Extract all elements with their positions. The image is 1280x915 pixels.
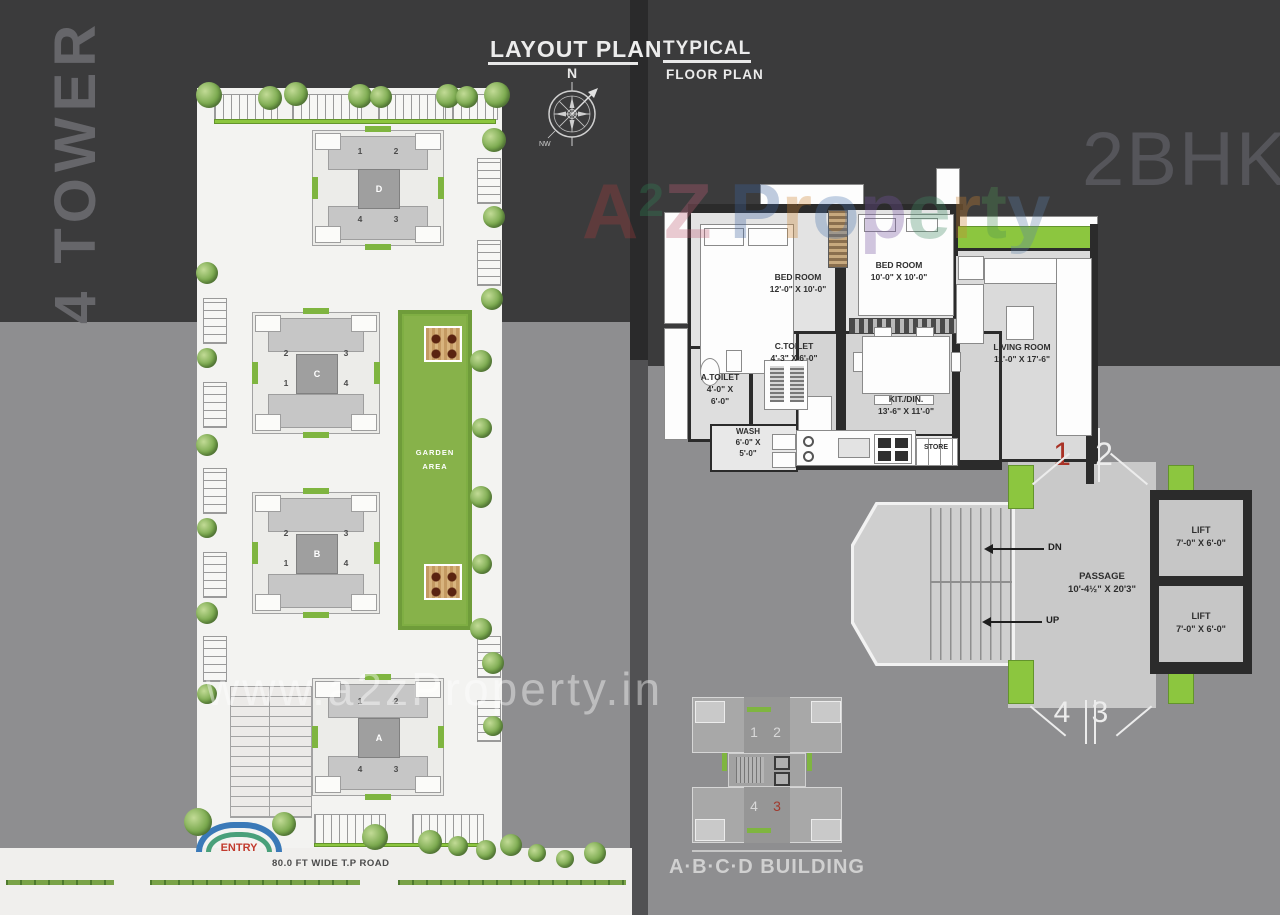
room-size: 12'-0" X 10'-0" bbox=[770, 284, 827, 296]
tree-icon bbox=[258, 86, 282, 110]
tree-icon bbox=[500, 834, 522, 856]
balcony-strip bbox=[303, 308, 329, 314]
compass-nw-label: NW bbox=[539, 141, 551, 148]
brand-watermark: A2ZProperty bbox=[582, 172, 1050, 261]
building-room bbox=[255, 495, 281, 512]
watermark-letter: e bbox=[907, 172, 950, 250]
kitchen-sink bbox=[838, 438, 870, 458]
chhajja-strip bbox=[664, 328, 688, 440]
room-size: 6'-0" bbox=[701, 396, 740, 408]
key-unit-1: 1 bbox=[750, 725, 758, 739]
room-name: KIT./DIN. bbox=[878, 394, 934, 406]
watermark-letter: p bbox=[860, 172, 908, 250]
balcony-strip bbox=[252, 362, 258, 384]
parking-stalls bbox=[477, 158, 501, 204]
entry-label: ENTRY bbox=[221, 842, 258, 854]
chair bbox=[874, 327, 892, 337]
garden-label-line2: AREA bbox=[416, 460, 455, 474]
building-letter: C bbox=[296, 354, 338, 394]
building-b: B 2 3 1 4 bbox=[252, 488, 380, 618]
layout-plan-page: 4 TOWER LAYOUT PLAN TYPICAL FLOOR PLAN N… bbox=[0, 0, 1280, 915]
wardrobe bbox=[849, 318, 959, 334]
deck-seats bbox=[426, 566, 460, 598]
unit-number: 3 bbox=[394, 764, 399, 774]
tree-icon bbox=[470, 486, 492, 508]
up-arrow-line bbox=[990, 621, 1042, 623]
tree-icon bbox=[556, 850, 574, 868]
living-room-label: LIVING ROOM 11'-0" X 17'-6" bbox=[993, 342, 1050, 366]
balcony-strip bbox=[312, 726, 318, 748]
chair bbox=[951, 352, 961, 372]
stair-landing-line bbox=[930, 581, 1012, 583]
sofa bbox=[1056, 258, 1092, 436]
compass-north-label: N bbox=[567, 65, 577, 81]
wash-sink bbox=[772, 452, 796, 468]
bedroom-2-label: BED ROOM 10'-0" X 10'-0" bbox=[871, 260, 928, 284]
key-plan-room bbox=[695, 819, 725, 841]
dn-arrow-icon bbox=[984, 544, 993, 554]
building-room bbox=[255, 414, 281, 431]
building-c: C 2 3 1 4 bbox=[252, 308, 380, 438]
parking-stalls bbox=[203, 552, 227, 598]
dn-arrow-line bbox=[992, 548, 1044, 550]
stairs-up-label: UP bbox=[1046, 615, 1059, 626]
dining-table bbox=[862, 336, 950, 394]
room-name: BED ROOM bbox=[770, 272, 827, 284]
room-name: PASSAGE bbox=[1068, 570, 1136, 583]
room-name: A.TOILET bbox=[701, 372, 740, 384]
tree-icon bbox=[482, 128, 506, 152]
chair bbox=[916, 327, 934, 337]
building-wing bbox=[328, 136, 428, 170]
building-room bbox=[351, 594, 377, 611]
tree-icon bbox=[272, 812, 296, 836]
room-size: 13'-6" X 11'-0" bbox=[878, 406, 934, 418]
building-room bbox=[315, 133, 341, 150]
unit-number: 3 bbox=[394, 214, 399, 224]
balcony-strip bbox=[312, 177, 318, 199]
tree-icon bbox=[483, 206, 505, 228]
watermark-letter: A bbox=[582, 172, 638, 250]
unit-number: 4 bbox=[344, 378, 349, 388]
room-name: C.TOILET bbox=[770, 341, 817, 353]
tree-icon bbox=[197, 348, 217, 368]
bedroom-1-label: BED ROOM 12'-0" X 10'-0" bbox=[770, 272, 827, 296]
balcony-strip bbox=[374, 542, 380, 564]
tree-icon bbox=[196, 262, 218, 284]
road-hedge bbox=[6, 880, 114, 885]
tree-icon bbox=[470, 618, 492, 640]
tree-icon bbox=[370, 86, 392, 108]
key-plan-lift bbox=[774, 756, 790, 770]
layout-plan-title: LAYOUT PLAN bbox=[490, 36, 662, 63]
passage-balcony bbox=[1008, 465, 1034, 509]
unit-number: 2 bbox=[284, 348, 289, 358]
key-unit-2: 2 bbox=[773, 725, 781, 739]
lift-1-label: LIFT 7'-0" X 6'-0" bbox=[1176, 524, 1226, 549]
building-room bbox=[415, 776, 441, 793]
marker-tick bbox=[1085, 700, 1087, 744]
tree-icon bbox=[528, 844, 546, 862]
unit-number: 3 bbox=[344, 348, 349, 358]
building-letter: B bbox=[296, 534, 338, 574]
attached-toilet-label: A.TOILET 4'-0" X 6'-0" bbox=[701, 372, 740, 408]
kitchen-dining-label: KIT./DIN. 13'-6" X 11'-0" bbox=[878, 394, 934, 418]
key-plan-room bbox=[695, 701, 725, 723]
marker-tick bbox=[1116, 705, 1153, 736]
room-name: LIFT bbox=[1176, 610, 1226, 623]
sofa bbox=[984, 258, 1062, 284]
tree-icon bbox=[418, 830, 442, 854]
wash-label: WASH 6'-0" X 5'-0" bbox=[736, 426, 761, 460]
parking-stalls bbox=[203, 298, 227, 344]
unit-number: 4 bbox=[344, 558, 349, 568]
room-size: 7'-0" X 6'-0" bbox=[1176, 623, 1226, 636]
unit-number: 2 bbox=[394, 146, 399, 156]
road-hedge bbox=[150, 880, 360, 885]
building-wing bbox=[328, 756, 428, 790]
building-letter: D bbox=[358, 169, 400, 209]
building-wing bbox=[268, 574, 364, 608]
key-plan: 1 2 4 3 bbox=[692, 695, 842, 845]
gas-ring bbox=[803, 436, 814, 447]
stair-treads bbox=[930, 508, 1012, 660]
room-name: STORE bbox=[924, 443, 948, 453]
balcony-strip bbox=[252, 542, 258, 564]
balcony-strip bbox=[365, 244, 391, 250]
tree-icon bbox=[196, 434, 218, 456]
key-plan-stairs bbox=[736, 757, 764, 783]
store-label: STORE bbox=[924, 443, 948, 453]
building-letter: A bbox=[358, 718, 400, 758]
lift-2-label: LIFT 7'-0" X 6'-0" bbox=[1176, 610, 1226, 635]
building-room bbox=[415, 133, 441, 150]
room-size: 11'-0" X 17'-6" bbox=[993, 354, 1050, 366]
building-room bbox=[415, 226, 441, 243]
building-room bbox=[255, 594, 281, 611]
passage-balcony bbox=[1008, 660, 1034, 704]
key-plan-room bbox=[811, 701, 841, 723]
key-plan-room bbox=[811, 819, 841, 841]
marker-tick bbox=[1098, 428, 1100, 482]
balcony-strip bbox=[374, 362, 380, 384]
common-toilet-label: C.TOILET 4'-3" X 6'-0" bbox=[770, 341, 817, 365]
room-name: BED ROOM bbox=[871, 260, 928, 272]
watermark-letter: o bbox=[812, 172, 860, 250]
marker-tick bbox=[1094, 700, 1096, 744]
gas-ring bbox=[803, 451, 814, 462]
tower-count-label: 4 TOWER bbox=[42, 34, 109, 324]
balcony-strip bbox=[303, 612, 329, 618]
building-room bbox=[351, 495, 377, 512]
balcony-strip bbox=[438, 177, 444, 199]
watermark-letter: y bbox=[1007, 172, 1050, 250]
url-watermark: www.a2zProperty.in bbox=[206, 662, 663, 716]
room-size: 4'-0" X bbox=[701, 384, 740, 396]
chair bbox=[853, 352, 863, 372]
watermark-letter: r bbox=[782, 172, 812, 250]
tree-icon bbox=[470, 350, 492, 372]
typical-underline bbox=[663, 60, 751, 63]
garden-deck bbox=[424, 326, 462, 362]
room-size: 6'-0" X bbox=[736, 437, 761, 448]
balcony-strip bbox=[722, 753, 727, 771]
tree-icon bbox=[348, 84, 372, 108]
panel-divider bbox=[630, 360, 648, 915]
room-name: LIVING ROOM bbox=[993, 342, 1050, 354]
tree-icon bbox=[196, 602, 218, 624]
passage-label: PASSAGE 10'-4½" X 20'3" bbox=[1068, 570, 1136, 597]
room-size: 7'-0" X 6'-0" bbox=[1176, 537, 1226, 550]
watermark-letter: t bbox=[981, 172, 1007, 250]
building-room bbox=[315, 226, 341, 243]
watermark-letter: r bbox=[951, 172, 981, 250]
unit-type-label: 2BHK bbox=[1082, 116, 1280, 203]
tree-icon bbox=[481, 288, 503, 310]
unit-number: 1 bbox=[284, 558, 289, 568]
unit-number: 4 bbox=[358, 214, 363, 224]
parking-stalls bbox=[203, 382, 227, 428]
building-room bbox=[351, 315, 377, 332]
washing-machine bbox=[772, 434, 796, 450]
room-name: LIFT bbox=[1176, 524, 1226, 537]
watermark-letter: Z bbox=[664, 172, 712, 250]
tree-icon bbox=[197, 518, 217, 538]
unit-marker-4: 4 bbox=[1054, 698, 1071, 728]
balcony-strip bbox=[747, 828, 771, 833]
floor-plan-title: FLOOR PLAN bbox=[666, 67, 764, 82]
garden-deck bbox=[424, 564, 462, 600]
tree-icon bbox=[484, 82, 510, 108]
key-plan-center bbox=[744, 787, 790, 843]
tree-icon bbox=[483, 716, 503, 736]
building-d: D 1 2 4 3 bbox=[312, 126, 444, 250]
tree-icon bbox=[196, 82, 222, 108]
road-hedge bbox=[398, 880, 626, 885]
balcony-strip bbox=[365, 794, 391, 800]
tree-icon bbox=[284, 82, 308, 106]
key-unit-3: 3 bbox=[773, 799, 781, 813]
balcony-strip bbox=[807, 753, 812, 771]
building-room bbox=[315, 776, 341, 793]
key-plan-title-rule bbox=[692, 850, 842, 852]
building-room bbox=[351, 414, 377, 431]
building-wing bbox=[268, 318, 364, 352]
typical-title: TYPICAL bbox=[663, 38, 751, 60]
tree-icon bbox=[448, 836, 468, 856]
balcony-strip bbox=[747, 707, 771, 712]
unit-number: 2 bbox=[284, 528, 289, 538]
compass-icon: N NW bbox=[526, 64, 618, 164]
key-unit-4: 4 bbox=[750, 799, 758, 813]
tree-icon bbox=[456, 86, 478, 108]
building-room bbox=[255, 315, 281, 332]
tree-icon bbox=[184, 808, 212, 836]
room-size: 10'-0" X 10'-0" bbox=[871, 272, 928, 284]
coffee-table bbox=[1006, 306, 1034, 340]
unit-number: 3 bbox=[344, 528, 349, 538]
building-wing bbox=[268, 498, 364, 532]
unit-number: 4 bbox=[358, 764, 363, 774]
room-name: WASH bbox=[736, 426, 761, 437]
toilet-fixture bbox=[770, 366, 784, 402]
building-wing bbox=[268, 394, 364, 428]
road-label: 80.0 FT WIDE T.P ROAD bbox=[272, 858, 389, 869]
toilet-fixture bbox=[790, 366, 804, 402]
balcony-strip bbox=[303, 432, 329, 438]
watermark-letter: P bbox=[730, 172, 782, 250]
deck-seats bbox=[426, 328, 460, 360]
stove bbox=[874, 434, 912, 464]
watermark-letter: 2 bbox=[638, 161, 664, 239]
key-plan-lift bbox=[774, 772, 790, 786]
parking-stalls bbox=[477, 240, 501, 286]
up-arrow-icon bbox=[982, 617, 991, 627]
garden-label: GARDEN AREA bbox=[416, 446, 455, 473]
balcony-strip bbox=[303, 488, 329, 494]
garden-label-line1: GARDEN bbox=[416, 446, 455, 460]
tree-icon bbox=[584, 842, 606, 864]
room-size: 4'-3" X 6'-0" bbox=[770, 353, 817, 365]
stairs-dn-label: DN bbox=[1048, 542, 1062, 553]
tree-icon bbox=[472, 554, 492, 574]
tree-icon bbox=[476, 840, 496, 860]
sofa bbox=[956, 284, 984, 344]
balcony-strip bbox=[365, 126, 391, 132]
wc bbox=[726, 350, 742, 372]
building-wing bbox=[328, 206, 428, 240]
hedge-strip bbox=[214, 119, 496, 124]
room-size: 5'-0" bbox=[736, 448, 761, 459]
key-plan-title: A·B·C·D BUILDING bbox=[617, 856, 917, 879]
tree-icon bbox=[362, 824, 388, 850]
tree-icon bbox=[472, 418, 492, 438]
unit-number: 1 bbox=[358, 146, 363, 156]
unit-number: 1 bbox=[284, 378, 289, 388]
room-size: 10'-4½" X 20'3" bbox=[1068, 583, 1136, 596]
parking-stalls bbox=[203, 468, 227, 514]
balcony-strip bbox=[438, 726, 444, 748]
